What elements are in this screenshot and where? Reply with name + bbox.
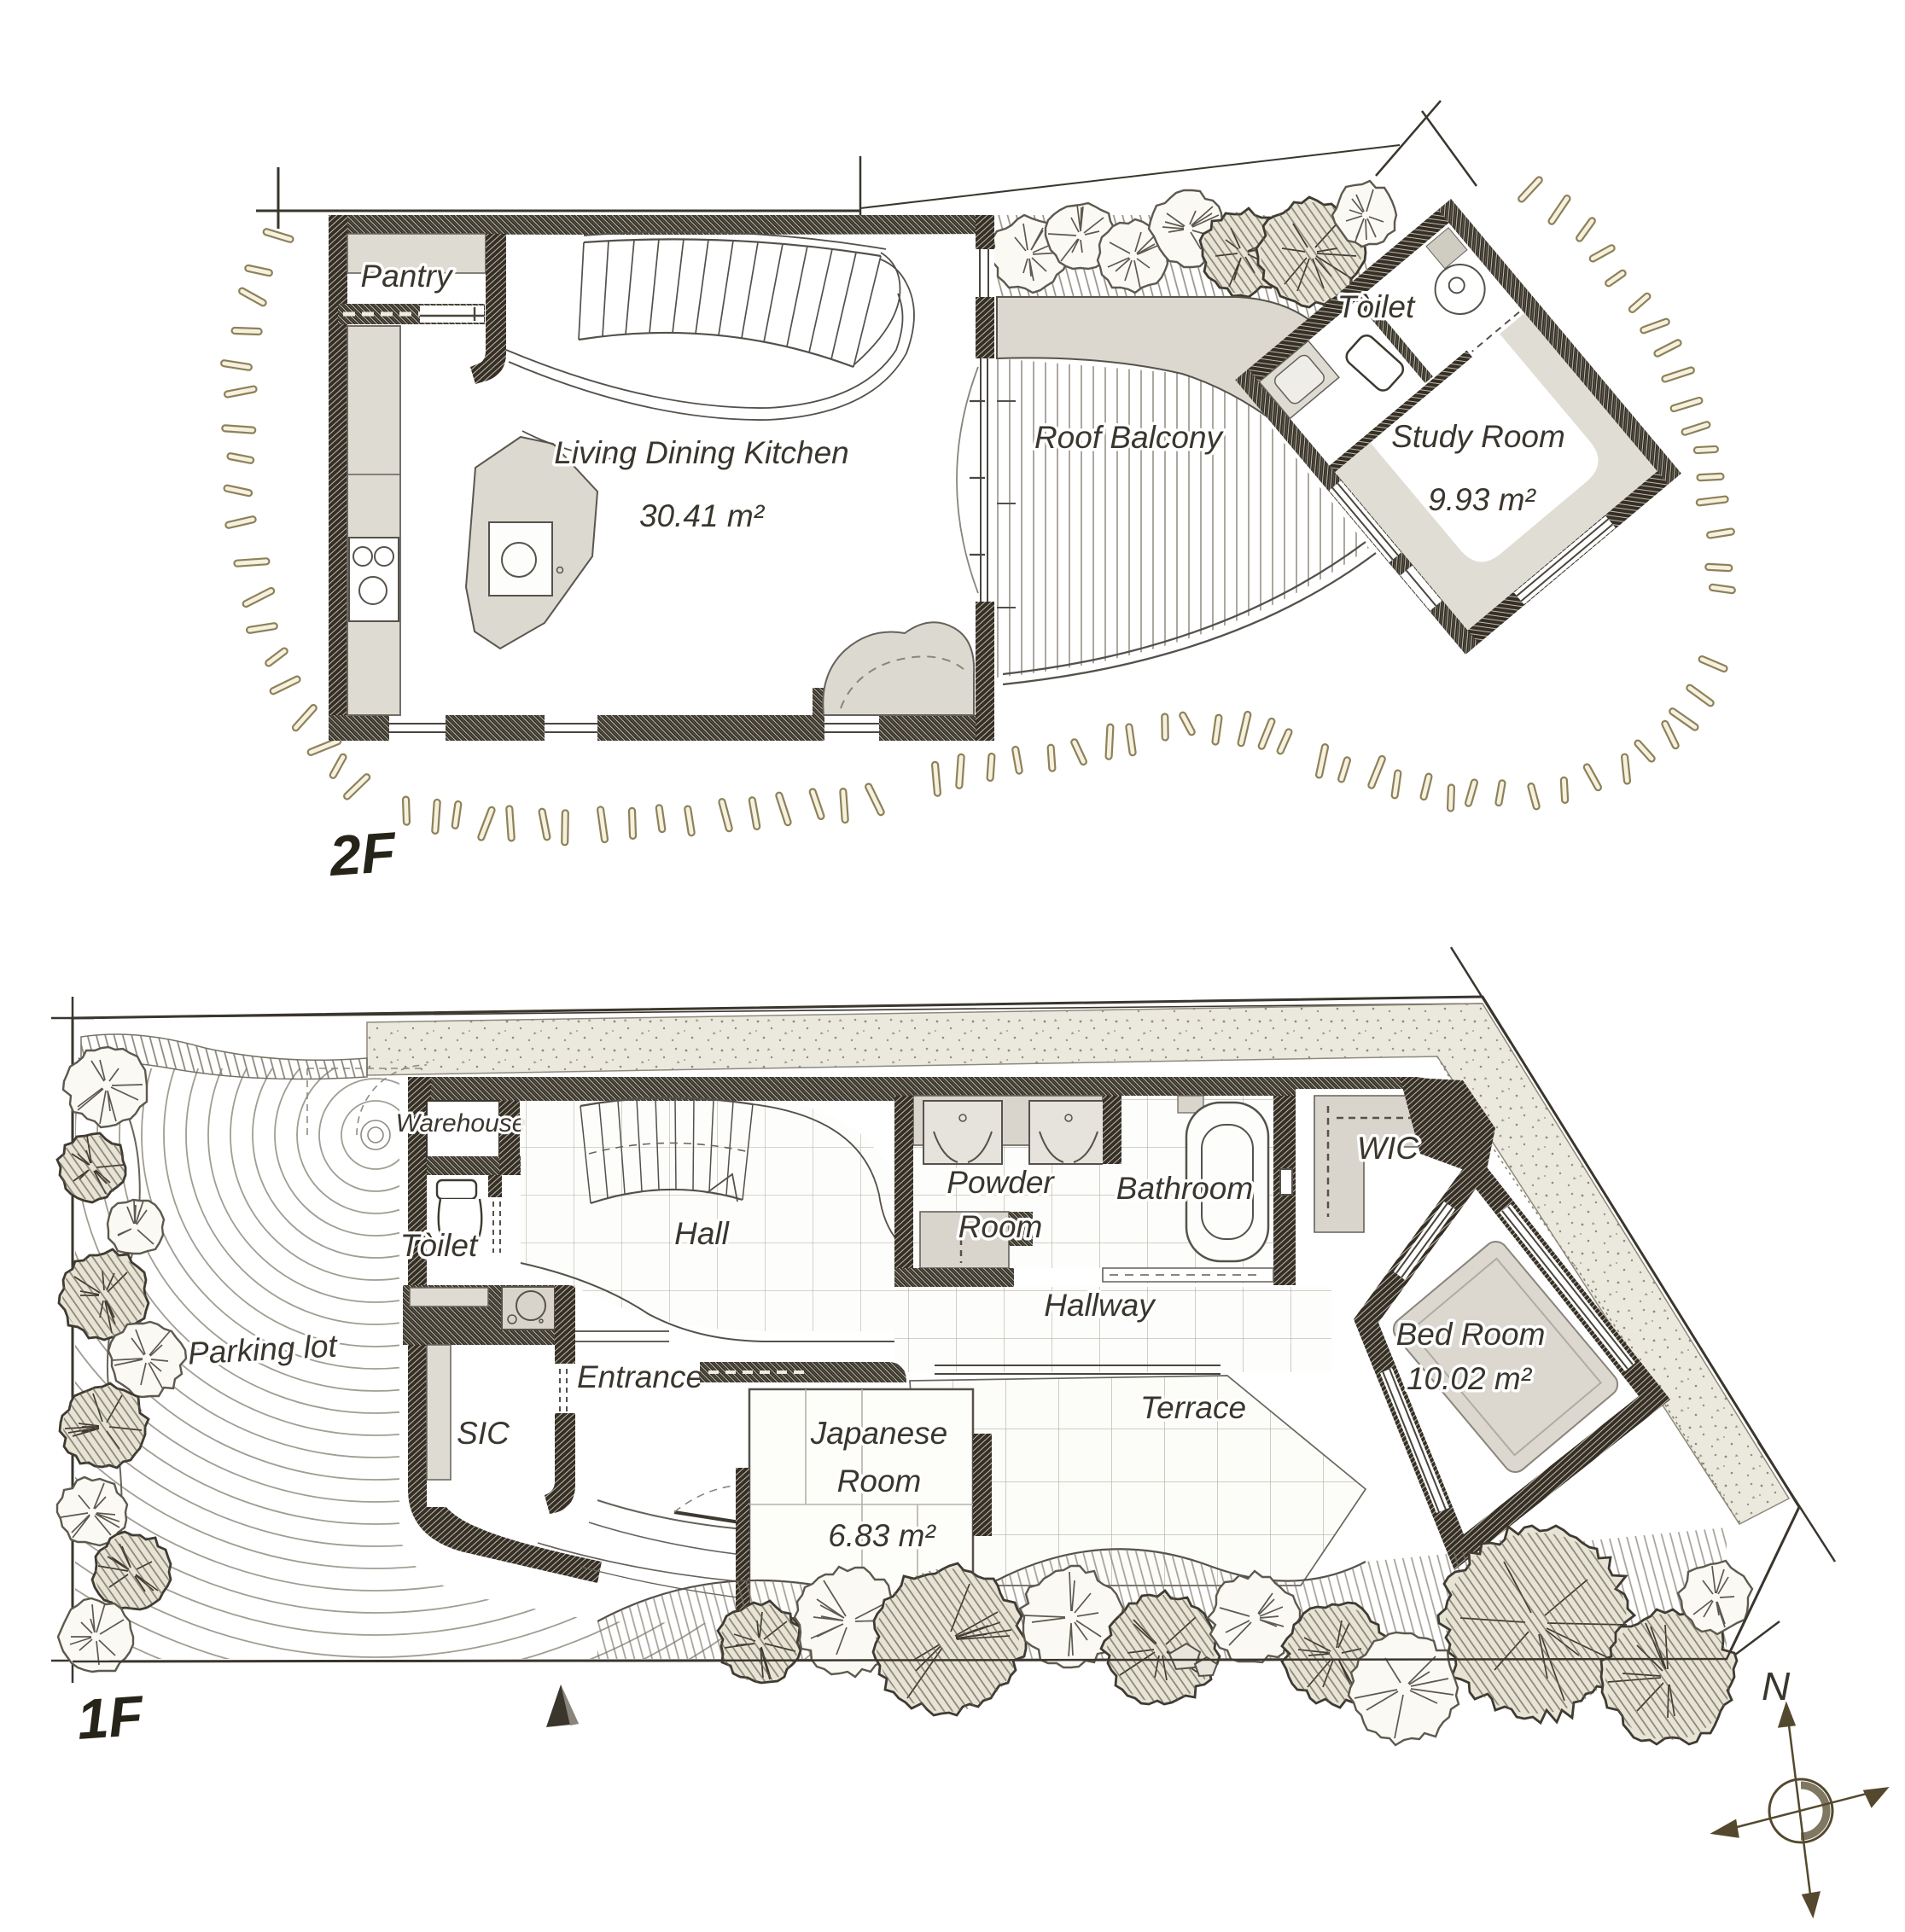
svg-text:Hallway: Hallway (1044, 1288, 1156, 1323)
svg-text:Bed Room: Bed Room (1396, 1317, 1546, 1352)
svg-text:Study Room: Study Room (1391, 419, 1565, 454)
svg-text:10.02 m²: 10.02 m² (1407, 1361, 1533, 1396)
svg-text:Tòilet: Tòilet (400, 1228, 479, 1263)
svg-text:6.83 m²: 6.83 m² (828, 1518, 936, 1553)
svg-text:Entrance: Entrance (577, 1359, 703, 1394)
svg-text:Room: Room (837, 1464, 922, 1498)
svg-text:1F: 1F (75, 1684, 147, 1751)
svg-text:Hall: Hall (674, 1216, 731, 1251)
svg-text:Pantry: Pantry (361, 259, 454, 294)
svg-text:Japanese: Japanese (810, 1416, 947, 1451)
svg-text:Terrace: Terrace (1140, 1390, 1246, 1425)
svg-text:2F: 2F (326, 820, 399, 887)
svg-text:9.93 m²: 9.93 m² (1428, 482, 1536, 517)
svg-text:Room: Room (958, 1209, 1043, 1244)
svg-text:SIC: SIC (457, 1416, 510, 1451)
svg-text:Powder: Powder (947, 1165, 1055, 1200)
svg-text:Bathroom: Bathroom (1116, 1171, 1253, 1206)
svg-text:30.41 m²: 30.41 m² (639, 498, 766, 533)
svg-text:Warehouse: Warehouse (396, 1109, 527, 1138)
svg-text:Roof Balcony: Roof Balcony (1034, 420, 1225, 455)
svg-text:WIC: WIC (1357, 1131, 1419, 1166)
svg-text:Living Dining Kitchen: Living Dining Kitchen (554, 435, 849, 470)
svg-text:N: N (1762, 1664, 1791, 1708)
svg-text:Tòilet: Tòilet (1337, 289, 1416, 324)
